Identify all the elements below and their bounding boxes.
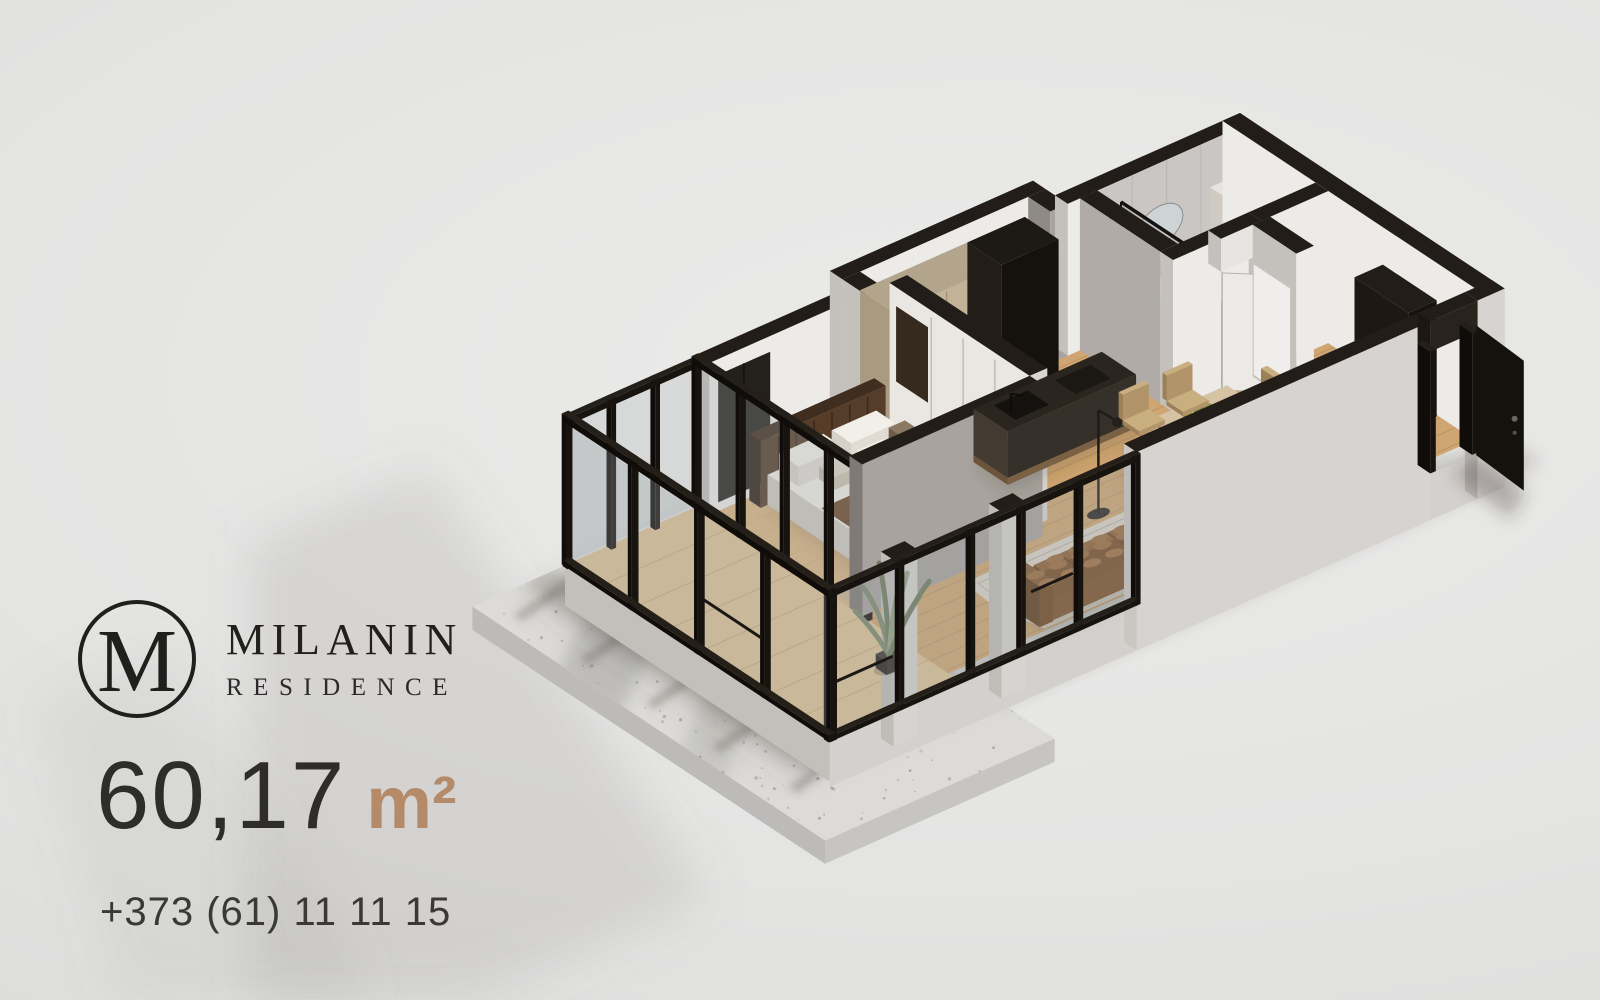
floorplan-3d-render xyxy=(0,0,1600,1000)
brand-name: MILANIN xyxy=(226,618,463,662)
monogram-circle-m-icon: M xyxy=(74,596,200,722)
floorplan-svg xyxy=(0,0,1600,1000)
apartment-area: 60,17 m² xyxy=(96,748,457,844)
brand-text: MILANIN RESIDENCE xyxy=(226,618,463,700)
brand-logo: M MILANIN RESIDENCE xyxy=(74,596,463,722)
monogram-letter: M xyxy=(97,612,177,711)
contact-phone: +373 (61) 11 11 15 xyxy=(100,892,451,932)
apartment xyxy=(562,113,1526,787)
area-value: 60,17 xyxy=(96,748,346,844)
brand-subtitle: RESIDENCE xyxy=(226,675,463,700)
area-unit: m² xyxy=(366,766,456,840)
